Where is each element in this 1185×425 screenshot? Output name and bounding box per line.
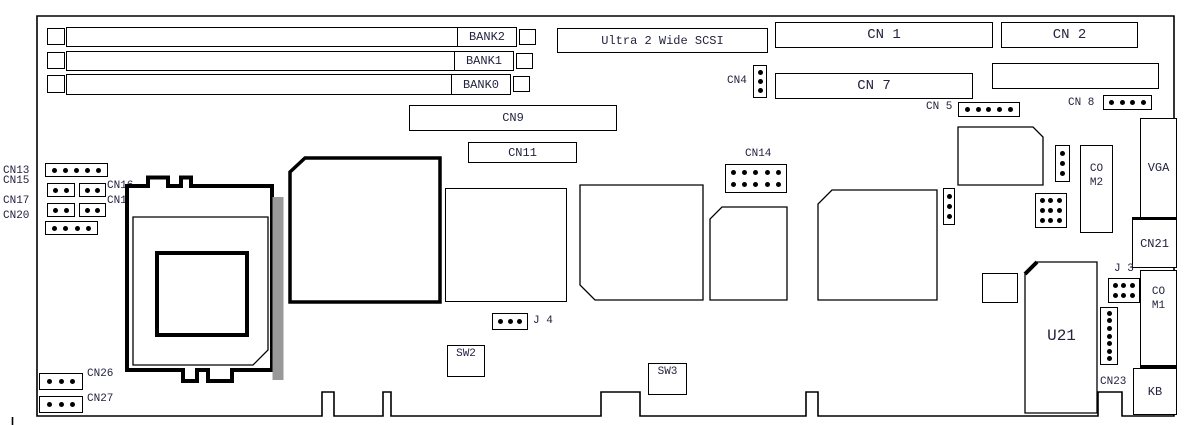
com1-connector: CO M1 xyxy=(1140,270,1177,368)
j4-pin-header xyxy=(492,313,528,330)
kb-connector: KB xyxy=(1133,368,1177,415)
sw2-label: SW2 xyxy=(456,348,476,360)
chip-bevel-top-left-small xyxy=(709,206,789,302)
cn7-label: CN 7 xyxy=(857,78,891,94)
cn2-label: CN 2 xyxy=(1053,27,1087,43)
com2-connector: CO M2 xyxy=(1080,145,1113,233)
j3-label: J 3 xyxy=(1114,264,1134,275)
bank2-right-clip xyxy=(519,29,536,45)
cn20-pin-header xyxy=(45,221,98,235)
cn8-pin-header xyxy=(1103,95,1152,110)
com2-label-line2: M2 xyxy=(1090,178,1103,189)
unlabeled-v3-right-pin-header xyxy=(1055,145,1070,182)
cn8-label: CN 8 xyxy=(1068,98,1094,109)
cn5-pin-header xyxy=(958,102,1020,117)
j4-label: J 4 xyxy=(533,316,553,327)
cn21-connector: CN21 xyxy=(1132,217,1177,268)
bank2-slot xyxy=(66,27,517,47)
cn23-label: CN23 xyxy=(1100,377,1126,388)
cn26-pin-header xyxy=(39,373,83,390)
bank1-right-clip xyxy=(516,53,533,69)
cn20-label: CN20 xyxy=(3,211,29,222)
cn7-connector: CN 7 xyxy=(775,73,973,99)
bank1-slot xyxy=(66,51,514,71)
unlabeled-v3-left-pin-header xyxy=(943,188,955,225)
cn21-label: CN21 xyxy=(1140,237,1169,251)
chip-bevel-top-left-large xyxy=(817,189,939,302)
bank0-left-clip xyxy=(47,75,65,93)
scsi-connector: Ultra 2 Wide SCSI xyxy=(557,28,768,53)
chip-square-1 xyxy=(445,188,567,302)
unlabeled-3x3-pin-header xyxy=(1035,193,1067,228)
unlabeled-connector-box xyxy=(992,63,1159,89)
sw3-switch: SW3 xyxy=(648,363,687,395)
com2-label-line1: CO xyxy=(1090,164,1103,175)
cn9-connector: CN9 xyxy=(409,105,617,131)
cn14-label: CN14 xyxy=(745,149,771,160)
com1-label-line1: CO xyxy=(1152,287,1165,298)
cn17-pin-header xyxy=(47,203,75,217)
cn23-pin-header xyxy=(1100,307,1118,365)
cn4-pin-header xyxy=(753,65,767,98)
small-square-component xyxy=(982,273,1018,303)
bank0-label-box: BANK0 xyxy=(451,74,511,95)
cn27-pin-header xyxy=(39,396,83,413)
vga-label: VGA xyxy=(1148,161,1170,175)
cn9-label: CN9 xyxy=(502,111,524,125)
bank2-label-box: BANK2 xyxy=(457,27,517,47)
cn11-label: CN11 xyxy=(508,146,537,160)
cn11-connector: CN11 xyxy=(468,142,577,163)
cn17-label: CN17 xyxy=(3,196,29,207)
cn27-label: CN27 xyxy=(87,394,113,405)
cn13-pin-header xyxy=(45,163,108,177)
bank0-right-clip xyxy=(513,76,530,92)
cn2-connector: CN 2 xyxy=(1001,22,1138,48)
socket-lever-bar xyxy=(273,197,284,380)
chip-large-thick xyxy=(288,156,443,305)
cn26-label: CN26 xyxy=(87,369,113,380)
sw2-switch: SW2 xyxy=(447,345,485,377)
chip-bevel-top-right xyxy=(957,126,1045,187)
cn18-pin-header xyxy=(79,203,106,217)
cn5-label: CN 5 xyxy=(926,102,952,113)
cn14-pin-header xyxy=(725,164,787,193)
bank2-left-clip xyxy=(47,28,65,45)
sw3-label: SW3 xyxy=(658,366,678,378)
cn1-label: CN 1 xyxy=(867,27,901,43)
bank0-label: BANK0 xyxy=(463,78,499,92)
com1-label-line2: M1 xyxy=(1152,301,1165,312)
kb-label: KB xyxy=(1148,385,1162,399)
cn15-label: CN15 xyxy=(3,176,29,187)
bank1-label-box: BANK1 xyxy=(454,51,514,71)
scsi-label: Ultra 2 Wide SCSI xyxy=(601,34,723,48)
vga-connector: VGA xyxy=(1140,118,1177,218)
chip-bevel-bottom-left xyxy=(579,184,705,302)
u21-label: U21 xyxy=(1024,328,1099,344)
bank1-left-clip xyxy=(47,52,65,69)
cn16-pin-header xyxy=(79,183,106,197)
cn4-label: CN4 xyxy=(727,76,747,87)
bank1-label: BANK1 xyxy=(466,54,502,68)
cn15-pin-header xyxy=(47,183,75,197)
bank0-slot xyxy=(66,74,511,95)
cpu-socket-cavity xyxy=(157,253,247,335)
cn1-connector: CN 1 xyxy=(775,22,993,48)
bank2-label: BANK2 xyxy=(469,30,505,44)
cpu-socket xyxy=(118,173,290,387)
j3-pin-header xyxy=(1108,278,1140,303)
motherboard-layout-diagram: BANK2 BANK1 BANK0 Ultra 2 Wide SCSI CN 1… xyxy=(0,0,1185,425)
